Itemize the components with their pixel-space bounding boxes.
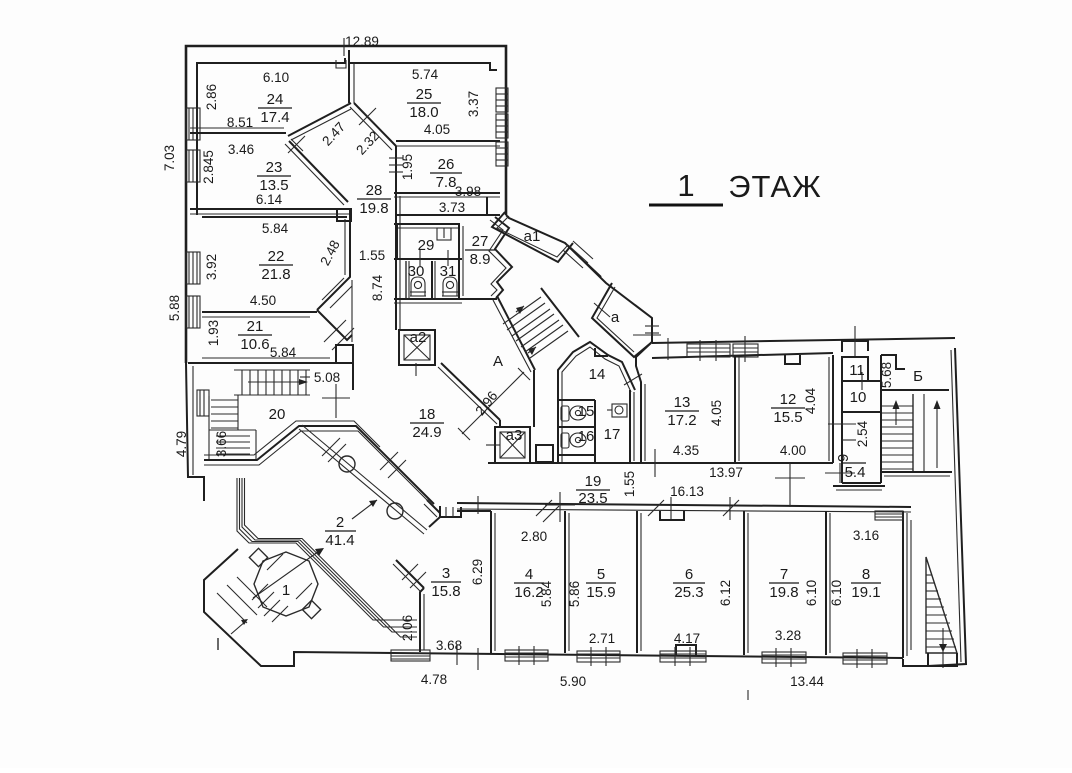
svg-text:10.6: 10.6 xyxy=(240,336,269,353)
svg-text:7: 7 xyxy=(780,566,788,583)
svg-text:5.4: 5.4 xyxy=(845,464,866,481)
svg-text:1.55: 1.55 xyxy=(359,248,385,263)
svg-text:6.14: 6.14 xyxy=(256,192,283,207)
svg-text:ЭТАЖ: ЭТАЖ xyxy=(728,169,822,204)
svg-text:3.46: 3.46 xyxy=(228,142,254,157)
svg-text:15.8: 15.8 xyxy=(431,583,460,600)
svg-text:16: 16 xyxy=(578,428,595,445)
svg-text:7.8: 7.8 xyxy=(436,174,457,191)
svg-text:10: 10 xyxy=(850,389,867,406)
svg-text:1.55: 1.55 xyxy=(622,471,637,497)
svg-text:12: 12 xyxy=(780,391,797,408)
svg-text:19.8: 19.8 xyxy=(359,200,388,217)
svg-text:2.80: 2.80 xyxy=(521,529,547,544)
svg-text:28: 28 xyxy=(366,182,383,199)
svg-text:6.29: 6.29 xyxy=(470,559,485,585)
svg-text:4.50: 4.50 xyxy=(250,293,276,308)
svg-text:2.06: 2.06 xyxy=(400,615,415,641)
svg-text:5.68: 5.68 xyxy=(879,362,894,388)
svg-text:4.05: 4.05 xyxy=(709,400,724,426)
svg-text:17: 17 xyxy=(604,426,621,443)
svg-text:19.1: 19.1 xyxy=(851,584,880,601)
svg-text:2: 2 xyxy=(336,514,344,531)
svg-text:21.8: 21.8 xyxy=(261,266,290,283)
svg-text:a3: a3 xyxy=(506,427,523,444)
svg-text:3.66: 3.66 xyxy=(214,431,229,457)
svg-text:5.90: 5.90 xyxy=(560,674,586,689)
svg-text:3.28: 3.28 xyxy=(775,628,801,643)
svg-text:6: 6 xyxy=(685,566,693,583)
svg-text:4.00: 4.00 xyxy=(780,443,806,458)
svg-text:3.68: 3.68 xyxy=(436,638,462,653)
svg-text:6.10: 6.10 xyxy=(829,580,844,606)
svg-text:Б: Б xyxy=(913,368,923,385)
svg-text:a1: a1 xyxy=(524,228,541,245)
svg-text:3.16: 3.16 xyxy=(853,528,879,543)
svg-text:5.86: 5.86 xyxy=(567,581,582,607)
svg-text:1: 1 xyxy=(282,582,290,599)
svg-text:3.92: 3.92 xyxy=(204,254,219,280)
svg-text:19: 19 xyxy=(585,473,602,490)
svg-text:27: 27 xyxy=(472,233,489,250)
svg-text:31: 31 xyxy=(440,263,457,280)
svg-text:8: 8 xyxy=(862,566,870,583)
svg-text:23.5: 23.5 xyxy=(578,490,607,507)
svg-text:13.97: 13.97 xyxy=(709,465,743,480)
svg-text:6.10: 6.10 xyxy=(804,580,819,606)
svg-text:7.03: 7.03 xyxy=(162,145,177,171)
svg-text:13: 13 xyxy=(674,394,691,411)
svg-text:21: 21 xyxy=(247,318,264,335)
svg-text:22: 22 xyxy=(268,248,285,265)
svg-text:11: 11 xyxy=(849,362,865,379)
svg-text:15.5: 15.5 xyxy=(773,409,802,426)
svg-text:19.8: 19.8 xyxy=(769,584,798,601)
svg-text:A: A xyxy=(493,353,503,370)
svg-text:4.05: 4.05 xyxy=(424,122,450,137)
svg-text:3.73: 3.73 xyxy=(439,200,465,215)
svg-text:5.84: 5.84 xyxy=(539,580,554,607)
svg-text:9: 9 xyxy=(835,454,852,462)
svg-text:5.74: 5.74 xyxy=(412,67,439,82)
svg-text:2.71: 2.71 xyxy=(589,631,615,646)
svg-text:6.10: 6.10 xyxy=(263,70,289,85)
svg-text:3: 3 xyxy=(442,565,450,582)
svg-text:a: a xyxy=(611,309,620,326)
svg-text:26: 26 xyxy=(438,156,455,173)
svg-text:13.44: 13.44 xyxy=(790,674,824,689)
svg-text:20: 20 xyxy=(269,406,286,423)
svg-text:5.84: 5.84 xyxy=(262,221,289,236)
svg-text:8.9: 8.9 xyxy=(470,251,491,268)
svg-text:1.95: 1.95 xyxy=(400,154,415,180)
svg-text:25: 25 xyxy=(416,86,433,103)
svg-text:29: 29 xyxy=(418,237,435,254)
svg-text:8.51: 8.51 xyxy=(227,115,253,130)
svg-text:4: 4 xyxy=(525,566,533,583)
svg-text:5.08: 5.08 xyxy=(314,370,340,385)
svg-text:41.4: 41.4 xyxy=(325,532,354,549)
svg-text:4.17: 4.17 xyxy=(674,631,700,646)
svg-text:1.93: 1.93 xyxy=(206,320,221,346)
svg-text:18.0: 18.0 xyxy=(409,104,438,121)
svg-text:17.2: 17.2 xyxy=(667,412,696,429)
svg-text:4.35: 4.35 xyxy=(673,443,699,458)
svg-text:4.79: 4.79 xyxy=(174,431,189,457)
svg-text:5: 5 xyxy=(597,566,605,583)
svg-text:3.37: 3.37 xyxy=(466,91,481,117)
svg-text:16.13: 16.13 xyxy=(670,484,704,499)
svg-text:6.12: 6.12 xyxy=(718,580,733,606)
svg-text:17.4: 17.4 xyxy=(260,109,289,126)
svg-text:15: 15 xyxy=(578,403,595,420)
svg-text:1: 1 xyxy=(677,168,694,203)
svg-text:24.9: 24.9 xyxy=(412,424,441,441)
svg-text:25.3: 25.3 xyxy=(674,584,703,601)
svg-text:2.86: 2.86 xyxy=(204,84,219,110)
svg-text:3.98: 3.98 xyxy=(455,184,481,199)
svg-text:4.04: 4.04 xyxy=(803,387,818,414)
svg-text:23: 23 xyxy=(266,159,283,176)
svg-text:18: 18 xyxy=(419,406,436,423)
svg-text:14: 14 xyxy=(589,366,606,383)
svg-text:8.74: 8.74 xyxy=(370,274,385,301)
svg-text:2.845: 2.845 xyxy=(201,150,216,184)
svg-text:5.88: 5.88 xyxy=(167,295,182,321)
svg-text:30: 30 xyxy=(408,263,425,280)
svg-text:2.54: 2.54 xyxy=(855,420,870,447)
svg-text:4.78: 4.78 xyxy=(421,672,447,687)
svg-text:12.89: 12.89 xyxy=(345,34,379,49)
svg-text:15.9: 15.9 xyxy=(586,584,615,601)
svg-text:24: 24 xyxy=(267,91,284,108)
svg-text:5.84: 5.84 xyxy=(270,345,297,360)
svg-text:a2: a2 xyxy=(410,329,427,346)
